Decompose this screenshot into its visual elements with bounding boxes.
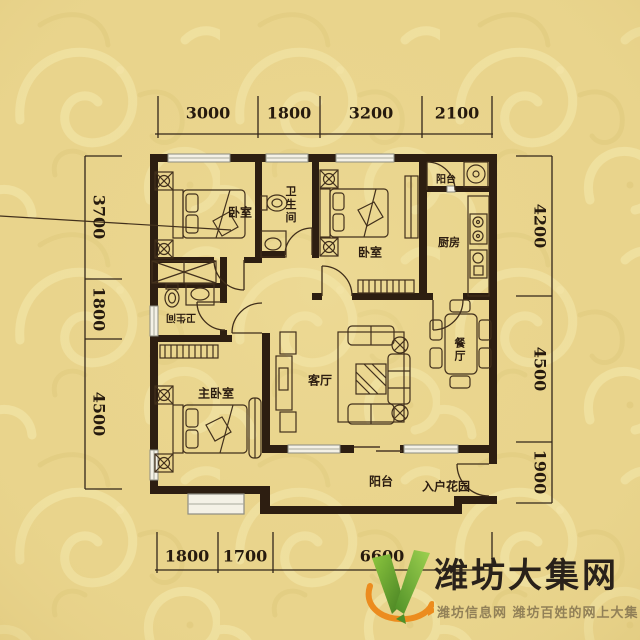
wardrobe-icon [152,261,216,283]
dim-bottom-2: 1700 [223,547,268,566]
bed-icon [0,172,245,258]
windows [150,154,458,514]
room-label-bathroom-left: 卫生间 [166,312,196,327]
dim-left-2: 1800 [90,287,109,332]
floorplan-image: 卧室 卫生间 卧室 厨房 阳台 卫生间 客厅 餐厅 主卧室 阳台 入户花园 30… [0,0,640,640]
room-label-balcony-top: 阳台 [436,171,456,186]
washing-machine-icon [464,162,488,187]
room-label-balcony-bottom: 阳台 [369,473,393,490]
coffee-table-icon [356,364,386,394]
room-label-entry-garden: 入户花园 [422,478,470,495]
kitchen-counter [468,196,489,296]
radiator-icon [160,345,218,358]
site-watermark: 潍坊大集网 潍坊信息网 潍坊百姓的网上大集 [362,548,640,634]
room-label-bedroom-middle: 卧室 [358,244,382,261]
room-label-living-room: 客厅 [308,372,332,389]
dim-top-3: 3200 [349,104,394,123]
radiator-icon [358,280,414,293]
tv-cabinet-icon [276,332,296,432]
dim-top-1: 3000 [186,104,231,123]
logo-v-icon [362,548,434,634]
bay-window [188,494,244,514]
dim-top-4: 2100 [435,104,480,123]
site-tagline: 潍坊信息网 潍坊百姓的网上大集 [437,602,639,621]
site-name: 潍坊大集网 [434,558,619,594]
dim-left-3: 4500 [90,392,109,437]
sliding-door [354,447,402,451]
dim-right-3: 1900 [531,450,550,495]
kitchen-sink-icon [470,250,487,278]
stove-icon [470,214,487,244]
room-label-bedroom-top-left: 卧室 [228,204,252,221]
sofa-icon [338,326,410,424]
wardrobe-icon [249,398,261,458]
dim-right-1: 4200 [531,204,550,249]
dim-top-2: 1800 [267,104,312,123]
dim-left-1: 3700 [90,195,109,240]
dim-bottom-1: 1800 [165,547,210,566]
wardrobe-icon [405,176,418,238]
room-label-master-bedroom: 主卧室 [198,385,234,402]
room-label-dining-room: 餐厅 [451,337,467,363]
dim-right-2: 4500 [531,347,550,392]
room-label-kitchen: 厨房 [438,234,460,250]
room-label-bathroom-top: 卫生间 [282,186,298,225]
